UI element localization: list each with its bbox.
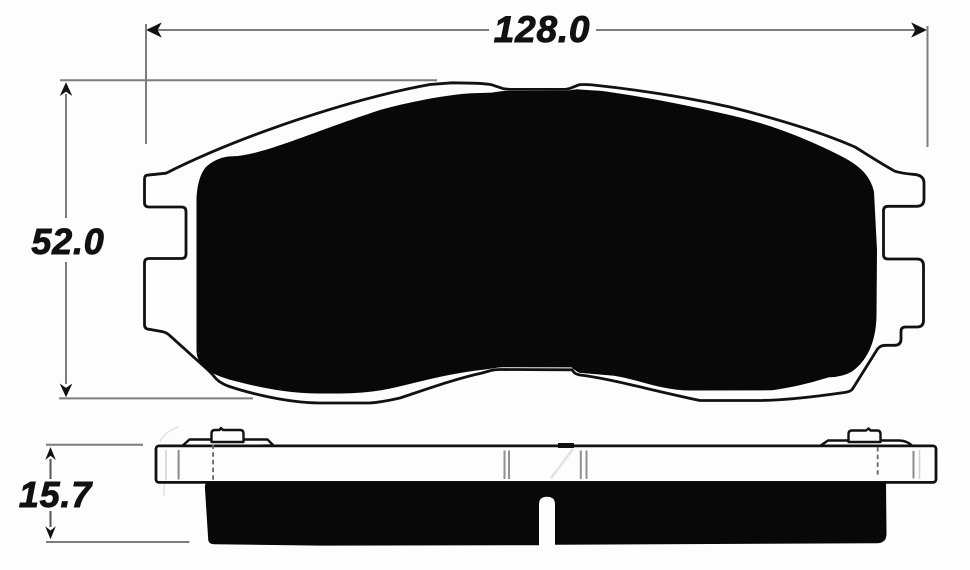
svg-text:128.0: 128.0 — [494, 9, 591, 50]
svg-text:15.7: 15.7 — [19, 474, 93, 515]
svg-text:52.0: 52.0 — [31, 221, 104, 262]
